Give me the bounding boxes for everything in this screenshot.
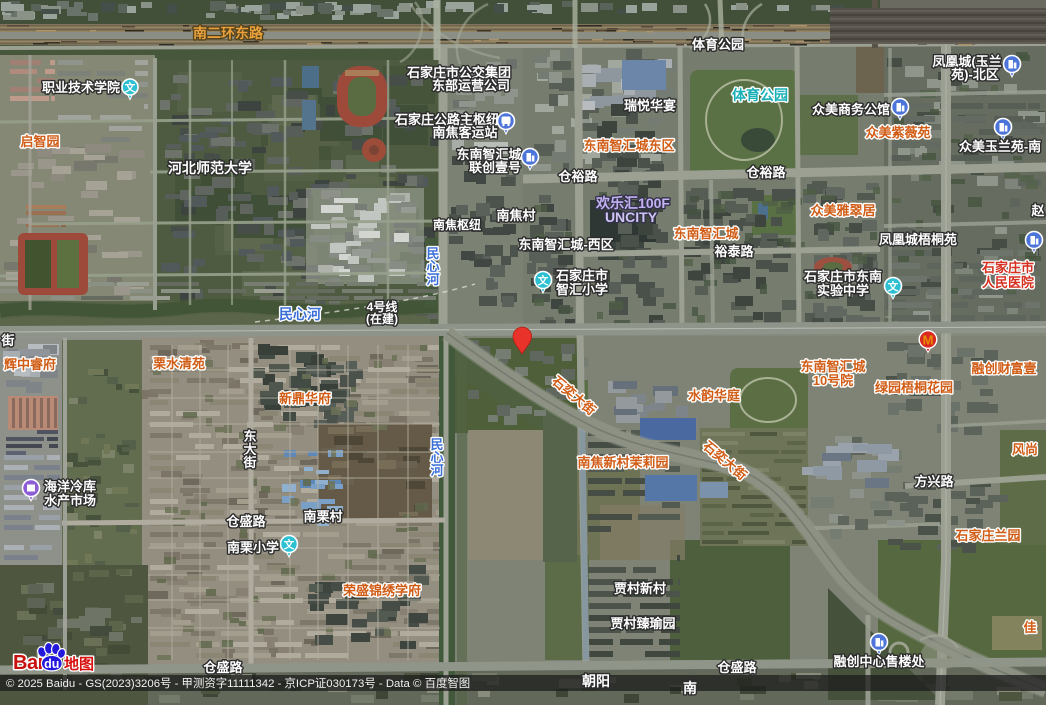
svg-text:石家庄市: 石家庄市 xyxy=(555,268,608,283)
svg-text:瑞悦华宴: 瑞悦华宴 xyxy=(624,98,676,113)
svg-text:海洋冷库: 海洋冷库 xyxy=(44,479,96,494)
svg-text:南焦枢纽: 南焦枢纽 xyxy=(433,217,481,232)
svg-text:© 2025 Baidu - GS(2023)3206号 -: © 2025 Baidu - GS(2023)3206号 - 甲测资字11111… xyxy=(6,676,470,690)
svg-text:民心河: 民心河 xyxy=(279,306,321,322)
svg-text:东南智汇城: 东南智汇城 xyxy=(673,226,738,241)
svg-text:水韵华庭: 水韵华庭 xyxy=(688,388,741,403)
svg-text:贾村臻瑜园: 贾村臻瑜园 xyxy=(610,616,675,631)
svg-text:南栗小学: 南栗小学 xyxy=(227,540,279,555)
svg-text:融创财富壹: 融创财富壹 xyxy=(971,361,1036,376)
svg-text:新鼎华府: 新鼎华府 xyxy=(279,391,331,406)
svg-text:河北师范大学: 河北师范大学 xyxy=(168,160,252,176)
svg-text:Bai: Bai xyxy=(13,652,43,674)
svg-text:赵: 赵 xyxy=(1030,203,1045,218)
svg-text:M: M xyxy=(923,333,934,348)
svg-text:智汇小学: 智汇小学 xyxy=(556,282,608,297)
svg-text:河: 河 xyxy=(430,463,443,478)
svg-text:(在建): (在建) xyxy=(366,311,398,326)
svg-text:凤凰城梧桐苑: 凤凰城梧桐苑 xyxy=(879,232,957,247)
svg-text:石家庄兰园: 石家庄兰园 xyxy=(954,528,1020,543)
svg-text:启智园: 启智园 xyxy=(20,134,59,149)
svg-text:街: 街 xyxy=(242,455,256,470)
svg-text:众美商务公馆: 众美商务公馆 xyxy=(812,102,890,117)
svg-text:文: 文 xyxy=(887,280,899,293)
svg-text:南: 南 xyxy=(683,680,697,696)
svg-text:裕泰路: 裕泰路 xyxy=(713,244,754,259)
svg-text:仓盛路: 仓盛路 xyxy=(202,660,243,675)
svg-text:绿园梧桐花园: 绿园梧桐花园 xyxy=(875,380,953,395)
svg-text:文: 文 xyxy=(537,274,549,287)
svg-text:街: 街 xyxy=(0,333,14,348)
svg-text:文: 文 xyxy=(283,538,295,551)
svg-text:荣盛锦绣学府: 荣盛锦绣学府 xyxy=(342,583,421,598)
svg-text:众美玉兰苑-南: 众美玉兰苑-南 xyxy=(959,139,1041,154)
svg-text:南二环东路: 南二环东路 xyxy=(193,25,264,41)
svg-text:贾村新村: 贾村新村 xyxy=(614,581,666,596)
svg-text:朝阳: 朝阳 xyxy=(582,673,610,689)
svg-text:融创中心售楼处: 融创中心售楼处 xyxy=(833,654,925,669)
svg-text:职业技术学院: 职业技术学院 xyxy=(42,80,120,95)
svg-text:石家庄市东南: 石家庄市东南 xyxy=(803,269,882,284)
svg-text:仓裕路: 仓裕路 xyxy=(557,169,598,184)
svg-text:东南智汇城东区: 东南智汇城东区 xyxy=(583,138,674,153)
svg-text:实验中学: 实验中学 xyxy=(817,283,869,298)
svg-text:南焦新村茉莉园: 南焦新村茉莉园 xyxy=(577,455,668,470)
svg-text:仓裕路: 仓裕路 xyxy=(745,165,786,180)
svg-text:东南智汇城: 东南智汇城 xyxy=(800,359,865,374)
svg-text:东部运营公司: 东部运营公司 xyxy=(432,78,510,93)
svg-text:体育公园: 体育公园 xyxy=(692,37,744,52)
svg-text:方兴路: 方兴路 xyxy=(914,474,954,489)
svg-text:联创壹号: 联创壹号 xyxy=(469,160,521,175)
svg-text:辉中睿府: 辉中睿府 xyxy=(4,357,56,372)
svg-text:南栗村: 南栗村 xyxy=(303,509,342,524)
svg-text:地图: 地图 xyxy=(64,655,94,673)
svg-text:众美雅翠居: 众美雅翠居 xyxy=(810,203,875,218)
svg-text:水产市场: 水产市场 xyxy=(44,493,96,508)
svg-text:东南智汇城-西区: 东南智汇城-西区 xyxy=(518,237,613,252)
svg-text:文: 文 xyxy=(124,81,136,94)
svg-text:苑)-北区: 苑)-北区 xyxy=(950,67,999,82)
svg-text:栗水清苑: 栗水清苑 xyxy=(153,356,205,371)
svg-text:仓盛路: 仓盛路 xyxy=(225,514,266,529)
svg-text:南焦客运站: 南焦客运站 xyxy=(432,125,497,140)
svg-text:风尚: 风尚 xyxy=(1012,442,1038,457)
svg-text:南焦村: 南焦村 xyxy=(496,208,535,223)
svg-text:UNCITY: UNCITY xyxy=(605,209,658,225)
svg-text:du: du xyxy=(44,657,59,671)
svg-text:仓盛路: 仓盛路 xyxy=(716,660,757,675)
svg-text:众美紫薇苑: 众美紫薇苑 xyxy=(865,125,930,140)
svg-text:佳: 佳 xyxy=(1023,620,1036,635)
svg-text:河: 河 xyxy=(426,272,439,287)
svg-text:体育公园: 体育公园 xyxy=(732,87,788,103)
svg-text:石家庄市: 石家庄市 xyxy=(981,260,1034,275)
svg-text:人民医院: 人民医院 xyxy=(982,275,1034,290)
svg-text:10号院: 10号院 xyxy=(813,373,853,388)
